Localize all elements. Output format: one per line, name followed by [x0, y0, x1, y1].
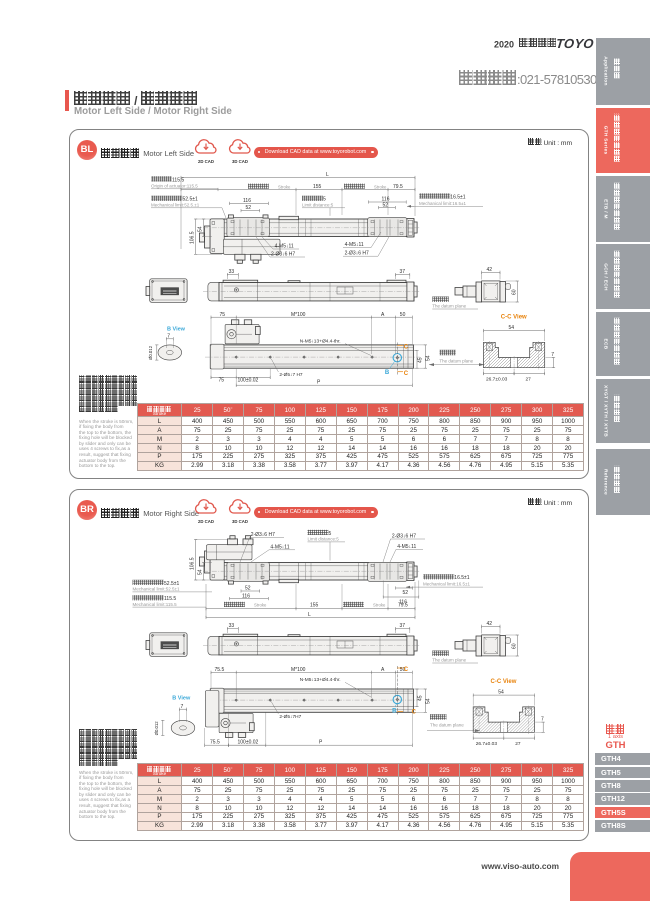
svg-text:37: 37	[400, 269, 406, 275]
svg-text:52: 52	[383, 202, 389, 208]
svg-text:2-Ø5↓7H7: 2-Ø5↓7H7	[279, 714, 301, 720]
svg-text:54: 54	[509, 325, 515, 331]
svg-text:26.7±0.03: 26.7±0.03	[476, 741, 498, 747]
svg-text:7: 7	[167, 333, 170, 339]
svg-text:N-M5↓13+Ø4.4-thr.: N-M5↓13+Ø4.4-thr.	[300, 677, 341, 683]
svg-text:52: 52	[246, 205, 252, 211]
svg-text:B: B	[392, 708, 397, 714]
svg-text:4-M5↓11: 4-M5↓11	[270, 544, 289, 550]
svg-text:Ø0.012: Ø0.012	[154, 721, 159, 736]
svg-text:4-M5↓11: 4-M5↓11	[275, 243, 294, 249]
svg-text:75.5: 75.5	[215, 667, 225, 673]
svg-text:Mechanical limit:115.5: Mechanical limit:115.5	[133, 602, 178, 607]
svg-text:4-M5↓11: 4-M5↓11	[345, 242, 364, 248]
svg-text:27: 27	[526, 376, 532, 382]
svg-text:M*100: M*100	[291, 312, 306, 318]
svg-text:60: 60	[512, 289, 518, 295]
svg-text:The datum plane: The datum plane	[439, 358, 473, 363]
svg-text:54: 54	[426, 698, 432, 704]
svg-text:C-C View: C-C View	[491, 679, 517, 685]
svg-text:100±0.02: 100±0.02	[238, 378, 259, 384]
svg-text:C: C	[404, 345, 409, 351]
svg-text:50: 50	[400, 312, 406, 318]
svg-text:2-Ø3↓6 H7: 2-Ø3↓6 H7	[345, 251, 369, 257]
svg-text:33: 33	[229, 623, 235, 629]
svg-text:Stroke: Stroke	[278, 184, 291, 189]
svg-text:2-Ø5↓7 H7: 2-Ø5↓7 H7	[279, 372, 303, 378]
svg-text:52: 52	[403, 590, 409, 596]
svg-text:Mechanical limit:52.5±1: Mechanical limit:52.5±1	[133, 587, 180, 592]
svg-text:2-Ø3↓6 H7: 2-Ø3↓6 H7	[392, 534, 416, 540]
svg-text:Limit distance:5: Limit distance:5	[302, 203, 334, 208]
svg-text:C: C	[404, 667, 409, 673]
svg-text:27: 27	[515, 741, 521, 747]
svg-text:The datum plane: The datum plane	[432, 304, 466, 309]
svg-text:116: 116	[242, 593, 250, 599]
svg-text:N-M5↓13+Ø4.4-thr.: N-M5↓13+Ø4.4-thr.	[300, 338, 341, 344]
svg-text:75.5: 75.5	[210, 739, 220, 745]
svg-text:16.5±1: 16.5±1	[454, 575, 469, 581]
svg-text:42: 42	[487, 267, 493, 273]
svg-text:Origin of actuator:115.5: Origin of actuator:115.5	[151, 183, 198, 188]
svg-text:116: 116	[243, 198, 251, 204]
svg-text:116: 116	[399, 599, 407, 605]
svg-text:C-C View: C-C View	[501, 314, 527, 320]
svg-text:7: 7	[541, 716, 544, 722]
svg-text:P: P	[317, 380, 321, 386]
svg-text:4-M5↓11: 4-M5↓11	[397, 544, 416, 550]
svg-text:33: 33	[229, 269, 235, 275]
svg-text:B View: B View	[172, 696, 191, 702]
svg-text:The datum plane: The datum plane	[432, 658, 466, 663]
svg-text:2-Ø3↓6 H7: 2-Ø3↓6 H7	[271, 252, 295, 258]
svg-text:60: 60	[512, 643, 518, 649]
svg-text:100±0.02: 100±0.02	[238, 739, 259, 745]
svg-text:P: P	[319, 739, 323, 745]
svg-text:7: 7	[181, 704, 184, 710]
svg-text:54: 54	[498, 690, 504, 696]
svg-text:B View: B View	[167, 326, 186, 332]
svg-text:45: 45	[417, 357, 423, 363]
svg-text:155: 155	[310, 602, 319, 608]
svg-text:16.5±1: 16.5±1	[450, 194, 465, 200]
svg-text:L: L	[326, 172, 329, 178]
svg-text:54: 54	[198, 226, 204, 232]
svg-text:The datum plane: The datum plane	[430, 723, 464, 728]
svg-text:M*100: M*100	[291, 667, 306, 673]
svg-text:Stroke: Stroke	[373, 603, 386, 608]
svg-text:26.7±0.03: 26.7±0.03	[486, 376, 508, 382]
svg-text:52: 52	[245, 586, 251, 592]
svg-text:75: 75	[220, 312, 226, 318]
svg-text:L: L	[308, 612, 311, 618]
svg-text:45: 45	[417, 695, 423, 701]
svg-text:37: 37	[400, 623, 406, 629]
svg-text:B: B	[385, 370, 390, 376]
svg-text:Mechanical limit:16.5±1: Mechanical limit:16.5±1	[419, 201, 466, 206]
svg-text:Ø0.012: Ø0.012	[148, 345, 153, 360]
svg-text:42: 42	[487, 621, 493, 627]
svg-text:75: 75	[219, 378, 225, 384]
svg-text:155: 155	[313, 184, 322, 190]
svg-text:79.5: 79.5	[393, 184, 403, 190]
svg-text:54: 54	[198, 569, 204, 575]
svg-text:106.5: 106.5	[189, 231, 195, 244]
svg-text:Limit distance:5: Limit distance:5	[308, 537, 340, 542]
svg-text:Mechanical limit:16.5±1: Mechanical limit:16.5±1	[423, 582, 470, 587]
svg-text:106.5: 106.5	[189, 557, 195, 570]
svg-text:Mechanical limit:52.5.±1: Mechanical limit:52.5.±1	[151, 203, 200, 208]
svg-text:Stroke: Stroke	[374, 184, 387, 189]
svg-text:Stroke: Stroke	[254, 603, 267, 608]
svg-text:7: 7	[551, 352, 554, 358]
svg-text:54: 54	[426, 355, 432, 361]
svg-text:2-Ø3↓6 H7: 2-Ø3↓6 H7	[251, 532, 275, 538]
svg-text:C: C	[404, 371, 409, 377]
